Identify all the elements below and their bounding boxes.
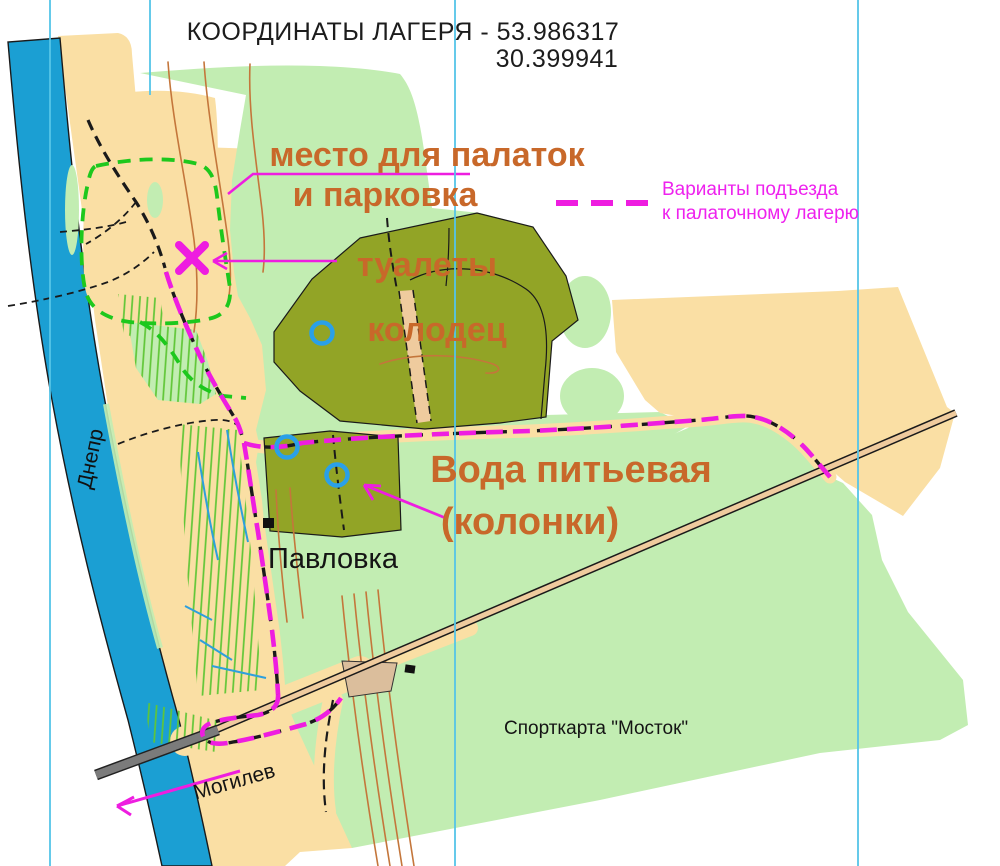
well-label: колодец [367,311,506,349]
camp-label-line2: и парковка [293,176,479,214]
orienteering-map: КООРДИНАТЫ ЛАГЕРЯ - 53.986317 30.399941 … [0,0,1000,866]
legend-line2: к палаточному лагерю [662,203,859,224]
legend-line1: Варианты подъезда [662,179,839,200]
map-page: КООРДИНАТЫ ЛАГЕРЯ - 53.986317 30.399941 … [0,0,1000,866]
water-label-line1: Вода питьевая [430,449,712,491]
map-title-coord2: 30.399941 [496,45,619,73]
toilets-label: туалеты [357,246,497,284]
map-credit: Спорткарта "Мосток" [504,718,688,739]
village-label: Павловка [268,543,399,575]
map-title: КООРДИНАТЫ ЛАГЕРЯ - 53.986317 [187,18,620,46]
building [263,518,274,528]
building [404,664,415,673]
camp-label-line1: место для палаток [269,136,585,174]
forest-sliver [65,165,79,255]
water-label-line2: (колонки) [441,501,619,543]
